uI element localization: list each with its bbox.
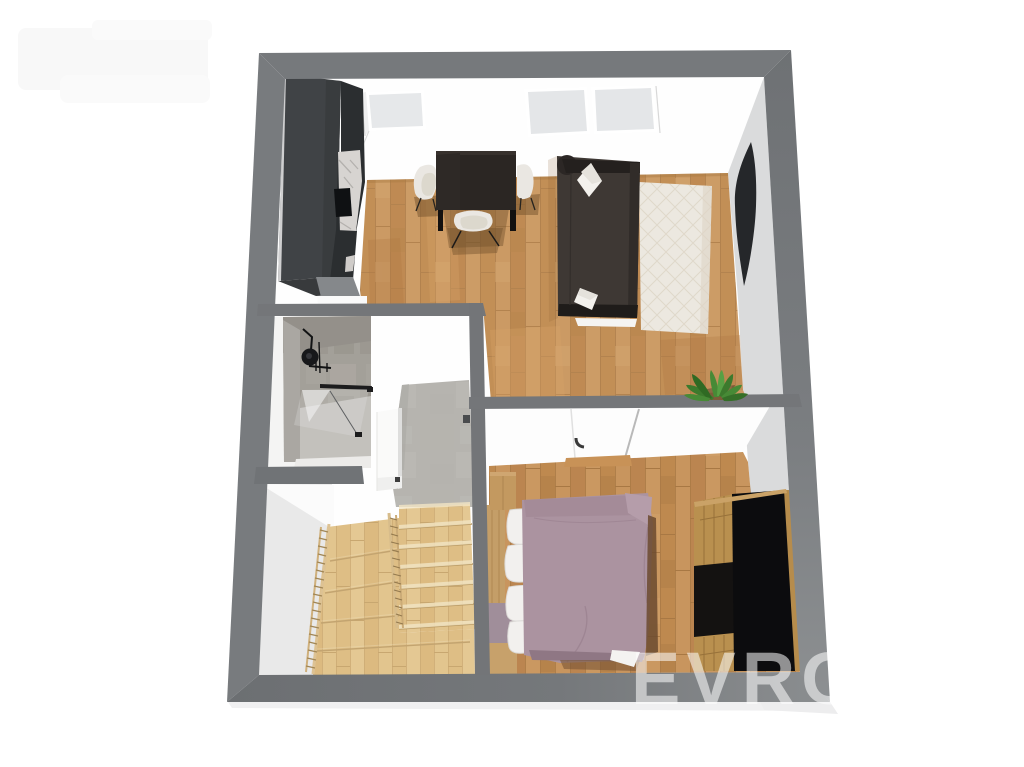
svg-text:EVRO: EVRO [631, 637, 865, 720]
